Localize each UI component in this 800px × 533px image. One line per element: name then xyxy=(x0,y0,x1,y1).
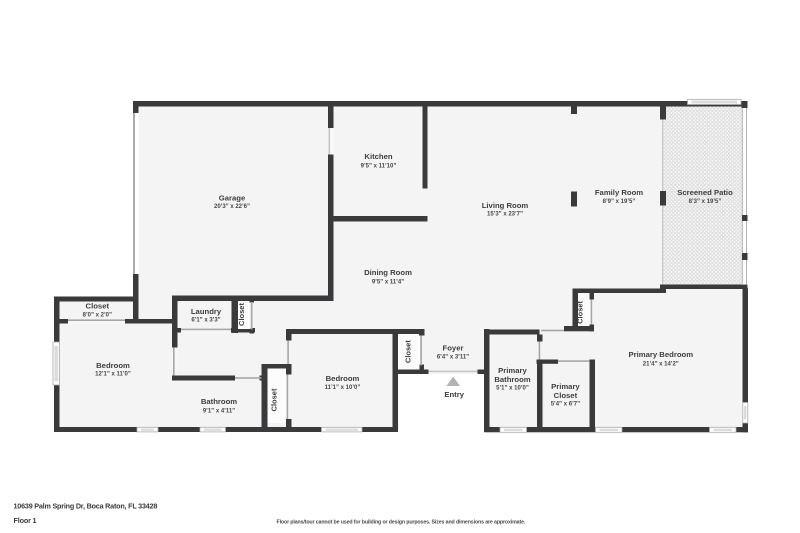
svg-text:20’3” x 22’6”: 20’3” x 22’6” xyxy=(214,204,250,210)
svg-text:Primary: Primary xyxy=(551,382,580,391)
svg-text:Bedroom: Bedroom xyxy=(96,361,130,370)
svg-text:Closet: Closet xyxy=(270,388,279,411)
svg-text:Dining Room: Dining Room xyxy=(364,268,412,277)
svg-text:15’3” x 23’7”: 15’3” x 23’7” xyxy=(487,211,523,217)
svg-text:Primary: Primary xyxy=(498,366,527,375)
svg-text:Floor plans/tour cannot be use: Floor plans/tour cannot be used for buil… xyxy=(277,519,526,525)
svg-text:12’1” x 11’0”: 12’1” x 11’0” xyxy=(95,372,131,378)
svg-text:6’4” x 3’11”: 6’4” x 3’11” xyxy=(437,354,469,360)
svg-text:9’1” x 4’11”: 9’1” x 4’11” xyxy=(203,408,235,414)
svg-text:Screened Patio: Screened Patio xyxy=(677,188,733,197)
svg-text:11’1” x 10’0”: 11’1” x 10’0” xyxy=(325,385,361,391)
svg-text:5’1” x 10’0”: 5’1” x 10’0” xyxy=(496,386,529,392)
svg-text:5’4” x 6’7”: 5’4” x 6’7” xyxy=(551,402,580,408)
svg-text:Entry: Entry xyxy=(444,390,464,399)
svg-text:Kitchen: Kitchen xyxy=(364,152,392,161)
svg-text:Living Room: Living Room xyxy=(482,201,529,210)
svg-text:Primary Bedroom: Primary Bedroom xyxy=(629,350,694,359)
svg-text:9’5” x 11’4”: 9’5” x 11’4” xyxy=(372,280,404,286)
svg-text:Closet: Closet xyxy=(575,300,584,323)
svg-text:Closet: Closet xyxy=(86,302,110,311)
svg-text:21’4” x 14’2”: 21’4” x 14’2” xyxy=(643,361,679,367)
svg-text:Bathroom: Bathroom xyxy=(494,375,530,384)
svg-text:8’3” x 19’5”: 8’3” x 19’5” xyxy=(689,199,722,205)
svg-text:Laundry: Laundry xyxy=(191,307,222,316)
svg-text:Closet: Closet xyxy=(403,340,412,363)
svg-text:6’1” x 3’3”: 6’1” x 3’3” xyxy=(191,318,220,324)
svg-text:9’5” x 11’10”: 9’5” x 11’10” xyxy=(361,163,397,169)
svg-text:Garage: Garage xyxy=(219,193,246,202)
svg-text:Family Room: Family Room xyxy=(595,188,643,197)
svg-text:Closet: Closet xyxy=(554,391,578,400)
svg-text:Bathroom: Bathroom xyxy=(201,397,237,406)
svg-text:8’9” x 19’5”: 8’9” x 19’5” xyxy=(603,199,636,205)
svg-text:Floor 1: Floor 1 xyxy=(14,516,37,525)
svg-text:Closet: Closet xyxy=(237,303,246,326)
svg-text:Bedroom: Bedroom xyxy=(326,374,360,383)
svg-text:Foyer: Foyer xyxy=(443,343,464,352)
svg-text:10639 Palm Spring Dr, Boca Rat: 10639 Palm Spring Dr, Boca Raton, FL 334… xyxy=(14,502,158,511)
svg-text:8’0” x 2’0”: 8’0” x 2’0” xyxy=(83,312,112,318)
